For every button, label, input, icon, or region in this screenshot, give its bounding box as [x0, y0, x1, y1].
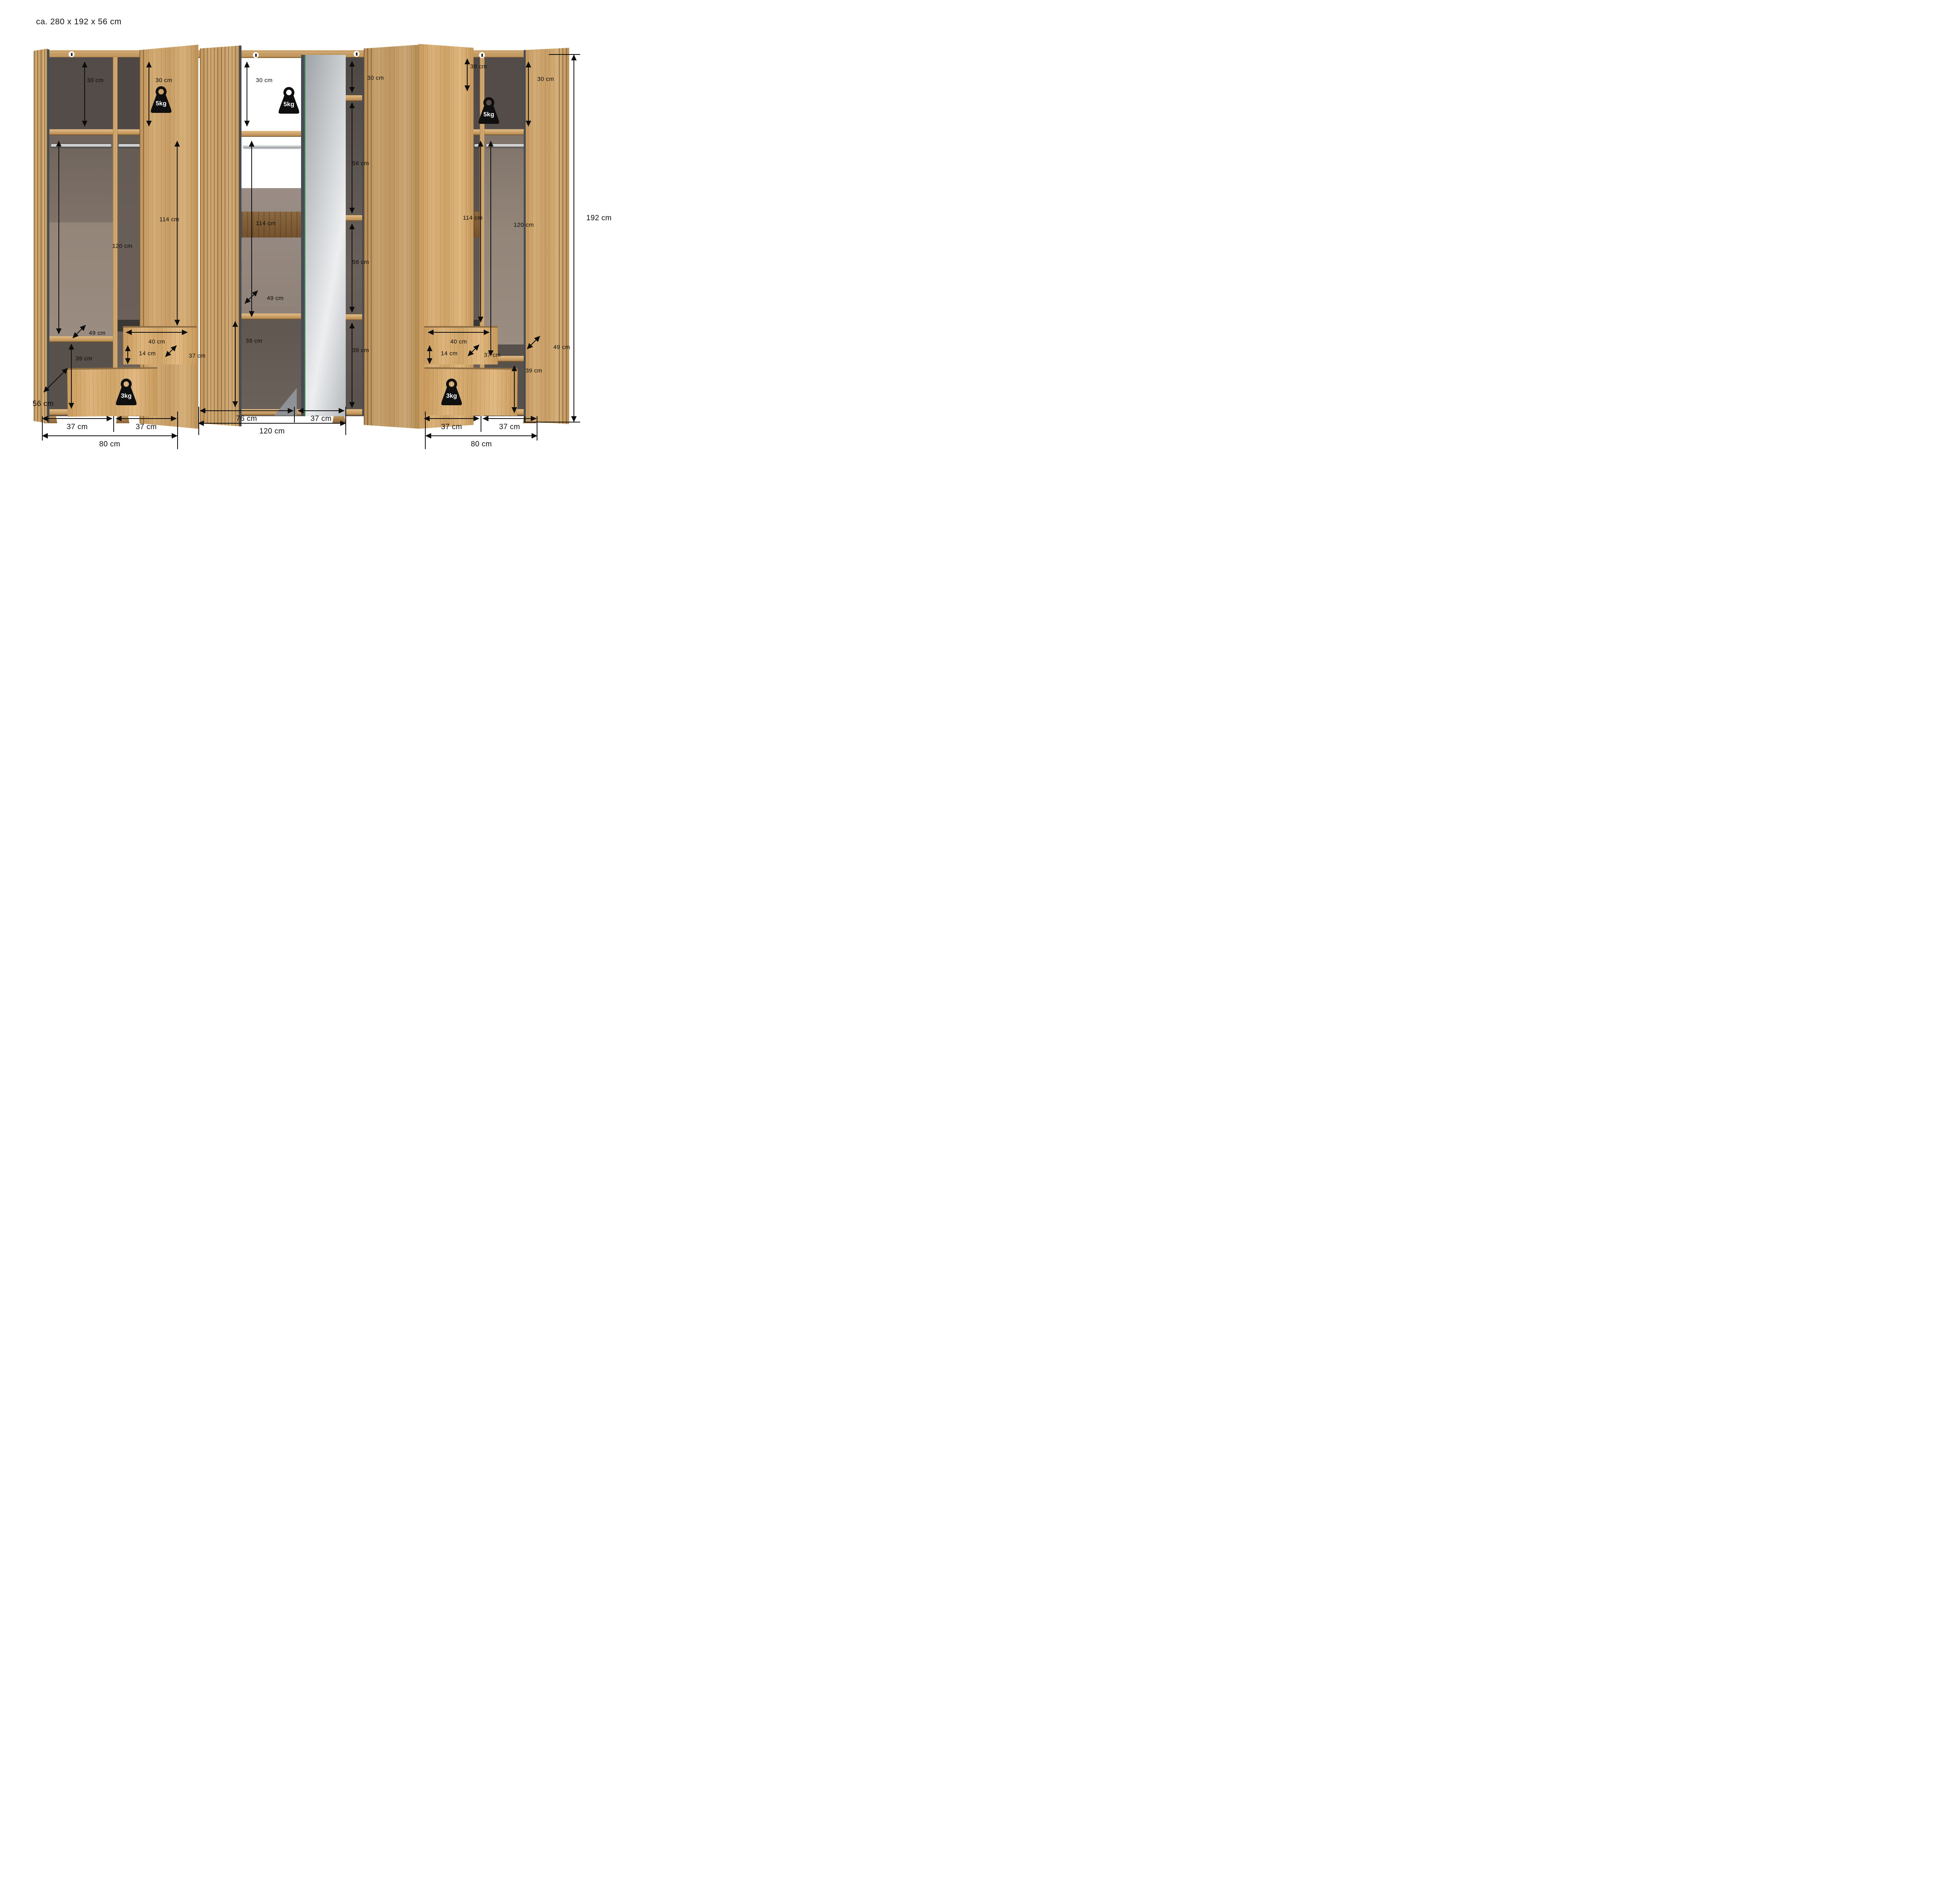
dim-label-37cm: 37 cm — [310, 415, 332, 423]
shelf — [346, 95, 362, 101]
ceiling-hook-icon — [354, 51, 359, 57]
ceiling-hook-icon — [69, 51, 74, 57]
left-section-divider — [113, 57, 118, 416]
shelf — [346, 314, 362, 320]
door-slats — [559, 48, 569, 424]
left-door-open — [34, 49, 48, 423]
dim-arrow-120cm-width — [198, 423, 346, 424]
dim-arrow-40cm-drawer — [126, 332, 187, 333]
dim-arrow-39cm — [514, 366, 515, 413]
dim-label-30cm: 30 cm — [256, 77, 273, 84]
weight-value: 5kg — [283, 101, 294, 108]
dim-label-56cm: 56 cm — [352, 259, 369, 266]
shelf — [49, 129, 113, 135]
dim-label-30cm: 30 cm — [87, 77, 104, 84]
door-inner-edge — [239, 45, 241, 426]
dim-arrow-76cm-width — [200, 410, 293, 411]
dim-arrow-120cm — [58, 141, 59, 334]
dim-arrow-39cm — [71, 344, 72, 408]
shelf — [346, 215, 362, 221]
dim-arrow-114cm — [177, 141, 178, 325]
dim-label-49cm: 49 cm — [89, 330, 106, 337]
dim-arrow-192cm-height — [573, 55, 574, 422]
dim-guide — [113, 416, 114, 432]
dim-label-56cm-depth: 56 cm — [33, 400, 54, 408]
dim-arrow-30cm — [467, 59, 468, 91]
bottom-board — [346, 409, 362, 415]
max-load-badge: 5kg — [151, 86, 172, 113]
dim-label-120cm: 120 cm — [260, 427, 285, 436]
dim-arrow-30cm — [352, 61, 352, 92]
max-load-badge: 5kg — [278, 87, 299, 114]
dim-label-49cm: 49 cm — [554, 344, 570, 351]
folding-door-leaf-left — [364, 45, 419, 429]
weight-value: 3kg — [121, 393, 132, 400]
max-load-badge: 5kg — [478, 97, 499, 124]
dim-label-30cm: 30 cm — [470, 63, 487, 70]
dim-guide — [294, 407, 295, 422]
dim-arrow-37cm-width — [298, 410, 344, 411]
dim-label-39cm: 39 cm — [246, 338, 263, 344]
dim-label-76cm: 76 cm — [236, 415, 257, 423]
dim-label-37cm: 37 cm — [441, 423, 462, 431]
dim-label-80cm: 80 cm — [471, 440, 492, 449]
dim-label-30cm: 30 cm — [537, 76, 554, 83]
interior-mirror-side-compartment — [346, 57, 362, 416]
dim-label-37cm: 37 cm — [189, 353, 206, 359]
dim-label-37cm: 37 cm — [499, 423, 520, 431]
weight-value: 5kg — [156, 100, 167, 107]
shelf — [241, 131, 303, 137]
dim-arrow-120cm — [490, 141, 491, 356]
dim-label-114cm: 114 cm — [463, 215, 483, 221]
dim-label-120cm: 120 cm — [514, 222, 534, 228]
wardrobe-dimension-diagram: ca. 280 x 192 x 56 cm — [0, 0, 626, 472]
dim-label-114cm: 114 cm — [256, 220, 276, 227]
dim-arrow-56cm — [352, 103, 352, 213]
dim-label-37cm: 37 cm — [484, 352, 501, 359]
dim-arrow-37cm-width — [42, 418, 112, 419]
max-load-badge: 3kg — [441, 379, 462, 405]
dim-arrow-30cm — [528, 62, 529, 126]
dim-tick — [524, 422, 580, 422]
dim-label-56cm: 56 cm — [352, 160, 369, 167]
dim-label-37cm: 37 cm — [67, 423, 88, 431]
mirror-door-edge — [301, 55, 304, 416]
page-title: ca. 280 x 192 x 56 cm — [36, 17, 122, 27]
dim-arrow-80cm-width — [426, 435, 537, 436]
dim-arrow-37cm-width — [116, 418, 176, 419]
weight-value: 5kg — [483, 111, 494, 118]
left-drawer-open-lower — [67, 367, 158, 417]
mirror-door — [305, 55, 346, 416]
dim-label-40cm: 40 cm — [149, 339, 165, 345]
dim-label-39cm: 39 cm — [76, 355, 93, 362]
dim-arrow-40cm-drawer — [428, 332, 489, 333]
shelf — [118, 129, 142, 135]
dim-label-114cm: 114 cm — [160, 216, 179, 223]
max-load-badge: 3kg — [116, 379, 137, 405]
dim-label-14cm: 14 cm — [139, 350, 156, 357]
ceiling-hook-icon — [479, 52, 485, 58]
dim-arrow-14cm-drawer — [429, 346, 430, 364]
hanging-rail — [118, 144, 141, 147]
dim-label-49cm: 49 cm — [267, 295, 284, 302]
dim-arrow-56cm — [352, 224, 352, 312]
dim-label-39cm: 39 cm — [526, 368, 543, 374]
dim-arrow-80cm-width — [42, 435, 177, 436]
door-slats — [34, 49, 48, 423]
dim-tick — [549, 54, 580, 55]
left-door-inner-edge — [47, 49, 49, 422]
dim-guide — [177, 412, 178, 449]
dim-tick — [524, 416, 525, 422]
shelf — [49, 336, 113, 342]
dim-label-37cm: 37 cm — [136, 423, 157, 431]
shelf — [474, 129, 480, 135]
dim-arrow-114cm — [480, 141, 481, 322]
dim-arrow-37cm-width — [424, 418, 479, 419]
dim-arrow-30cm — [149, 62, 149, 126]
dim-arrow-37cm-width — [483, 418, 536, 419]
dim-label-40cm: 40 cm — [450, 339, 467, 345]
door-slats — [364, 45, 372, 429]
dim-arrow-39cm — [352, 323, 352, 408]
dim-label-80cm: 80 cm — [99, 440, 120, 449]
dim-label-192cm: 192 cm — [586, 214, 612, 223]
dim-label-30cm: 30 cm — [367, 75, 384, 82]
dim-arrow-39cm — [235, 321, 236, 407]
dim-arrow-114cm — [251, 141, 252, 317]
dim-label-14cm: 14 cm — [441, 350, 458, 357]
dim-label-120cm: 120 cm — [112, 243, 132, 250]
dim-arrow-30cm — [84, 62, 85, 126]
dim-label-30cm: 30 cm — [156, 77, 172, 84]
dim-arrow-14cm-drawer — [127, 346, 128, 364]
dim-label-39cm: 39 cm — [352, 347, 369, 354]
dim-guide — [481, 416, 481, 432]
right-drawer-open-lower — [424, 367, 517, 416]
dim-arrow-30cm — [247, 62, 247, 126]
ceiling-hook-icon — [253, 52, 259, 58]
weight-value: 3kg — [446, 393, 457, 400]
